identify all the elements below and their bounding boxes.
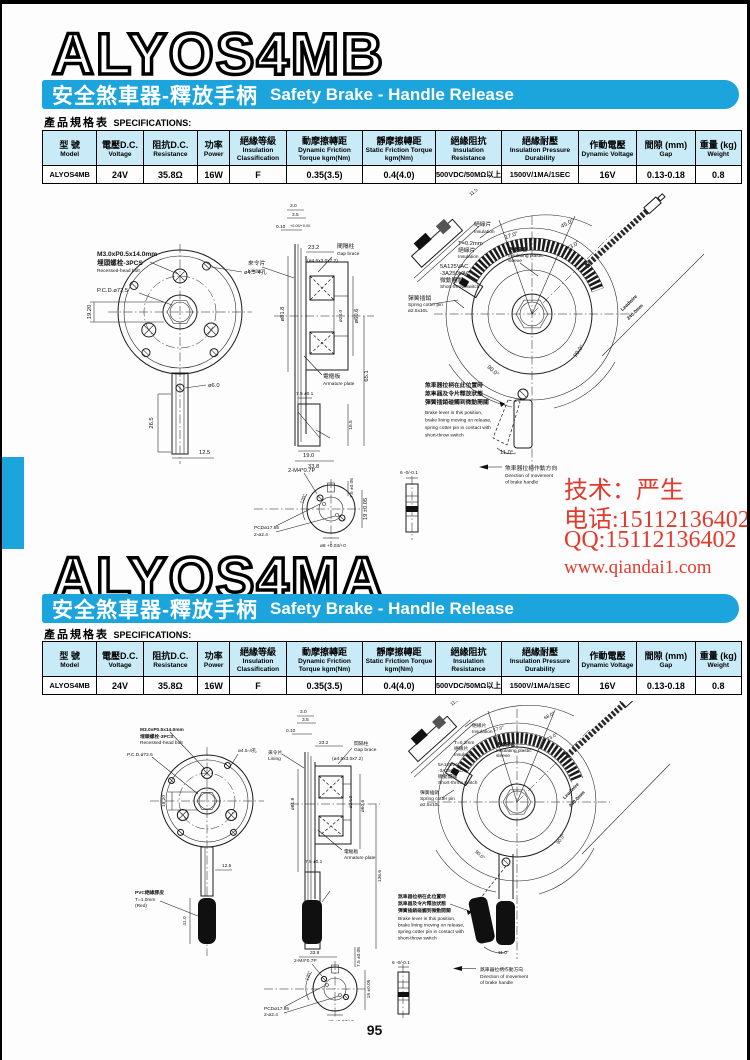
dim-16-5: 16.5 bbox=[348, 420, 354, 430]
angle-17: 17.0° bbox=[492, 725, 505, 734]
angle-11: 11.0° bbox=[500, 450, 513, 456]
col-gap: 間隙 (mm)Gap bbox=[637, 131, 695, 166]
lining-zh: 來令片 bbox=[248, 259, 266, 267]
angle-90-right: 90.0° bbox=[573, 344, 586, 359]
armature-en: Armature plate bbox=[344, 855, 376, 861]
armature-zh: 電樞板 bbox=[344, 848, 359, 855]
col-resistance: 阻抗D.C.Resistance bbox=[143, 131, 197, 166]
col-insulation-resistance: 絕緣阻抗Insulation Resistance bbox=[435, 131, 501, 166]
cell-resistance: 35.8Ω bbox=[143, 166, 197, 184]
col-model: 型 號Model bbox=[43, 131, 97, 166]
dia-8-label: ø8 +0.03/+0 bbox=[328, 1019, 354, 1021]
leadwire-connector bbox=[644, 192, 666, 213]
pcd-label: P.C.D.ø72.5 bbox=[127, 752, 153, 758]
cell-power: 16W bbox=[198, 677, 230, 695]
back-view-2: 11.5 17.0° 68.0° 73.0° 90.0° 90.0° 11.0°… bbox=[394, 701, 670, 986]
dim-19b: 19 ±0.05 bbox=[366, 979, 372, 998]
col-static-friction: 靜摩擦轉距Static Friction Torque kgm(Nm) bbox=[363, 131, 436, 166]
gap-size: (ø4.5x3.0x7.2) bbox=[307, 258, 338, 264]
dim-19-20: 19.20 bbox=[87, 305, 93, 320]
hub-bolt-label: 2-M4*0.7P bbox=[294, 958, 317, 964]
dia-60-6: ø60.6 bbox=[354, 309, 360, 324]
dim-11-5: 11.5 bbox=[449, 701, 460, 708]
side-section-view-1: 3.0 3.5 0.10 +0.05/+0.00 23.2 間隔柱 Gap br… bbox=[248, 203, 374, 470]
svg-text:of brake handle: of brake handle bbox=[505, 480, 538, 486]
dim-3-0: 3.0 bbox=[300, 709, 307, 715]
angle-11: 11.0° bbox=[498, 950, 509, 956]
hub-pcd-label: PCDø17.85 bbox=[254, 525, 279, 531]
cell-gap: 0.13-0.18 bbox=[637, 677, 695, 695]
cell-weight: 0.8 bbox=[695, 677, 741, 695]
cell-model: ALYOS4MB bbox=[43, 677, 97, 695]
cell-insulation-resistance: 500VDC/50MΩ以上 bbox=[435, 677, 501, 695]
pvc-label-1: PVC絕緣膠皮 bbox=[135, 889, 164, 896]
bolt-spec-label: M3.0xP0.5x14.0mm bbox=[97, 251, 157, 258]
section2-banner: 安全煞車器-釋放手柄 Safety Brake - Handle Release bbox=[42, 594, 739, 623]
back-view-1: 11.5 17.0° 45.0° 73.0° 90.0° 90.0° 11.0°… bbox=[397, 189, 704, 486]
col-insulation-class: 絕緣等級Insulation Classification bbox=[230, 642, 286, 677]
col-weight: 重量 (kg)Weight bbox=[695, 642, 741, 677]
cell-gap: 0.13-0.18 bbox=[637, 166, 695, 184]
dim-65-1: 65.1 bbox=[364, 370, 370, 381]
svg-text:Direction of movement: Direction of movement bbox=[505, 473, 554, 479]
pin-zh: 彈簧插銷 bbox=[408, 294, 431, 302]
spec-table-1: 型 號Model 電壓D.C.Voltage 阻抗D.C.Resistance … bbox=[42, 130, 742, 184]
dim-6-label: 6 -0/-0.1 bbox=[400, 470, 418, 476]
col-insulation-pressure: 絕緣耐壓Insulation Pressure Durability bbox=[502, 642, 579, 677]
watermark-url: www.qiandai1.com bbox=[564, 557, 712, 579]
gap-zh: 間隔柱 bbox=[354, 740, 369, 747]
drawing-section-2: M3.0xP0.5x14.0mm 埋頭螺栓-3PCS Recessed-head… bbox=[2, 701, 750, 1021]
hub-detail-2: 2-M4*0.7P 120° PCDø17.85 2-ø2.4 19 ±0.05… bbox=[264, 958, 410, 1021]
front-view-1: M3.0xP0.5x14.0mm 埋頭螺栓-3PCS Recessed-head… bbox=[87, 244, 267, 464]
hub-holes-label: 2-ø2.4 bbox=[264, 1012, 278, 1018]
col-power: 功率Power bbox=[198, 131, 230, 166]
switch-zh: 微動開關 bbox=[440, 276, 463, 284]
svg-text:short-throw switch: short-throw switch bbox=[398, 936, 437, 942]
page-number: 95 bbox=[2, 1022, 747, 1038]
col-insulation-pressure: 絕緣耐壓Insulation Pressure Durability bbox=[502, 131, 579, 166]
dim-33-8: 33.8 bbox=[310, 950, 320, 956]
insul-en-2: Insulation bbox=[458, 254, 479, 260]
cell-voltage: 24V bbox=[97, 677, 143, 695]
armature-zh: 電樞板 bbox=[323, 372, 341, 380]
switch-v2: -3A250VAC bbox=[440, 271, 470, 277]
cell-insulation-class: F bbox=[230, 677, 286, 695]
sleeve-en2: sleeve bbox=[496, 753, 510, 759]
svg-text:彈簧插銷碰觸到微動開關: 彈簧插銷碰觸到微動開關 bbox=[398, 907, 451, 914]
bolt-zh-label: 埋頭螺栓-3PCS bbox=[97, 258, 143, 267]
cell-dynamic-voltage: 16V bbox=[578, 677, 636, 695]
dim-3-0: 3.0 bbox=[290, 203, 297, 209]
cell-insulation-pressure: 1500V/1MA/1SEC bbox=[502, 677, 579, 695]
hub-holes-label: 2-ø2.4 bbox=[254, 532, 268, 538]
switch-en: Short-throw switch bbox=[438, 780, 478, 786]
pin-size: ø2.5x10L bbox=[408, 308, 428, 314]
pin-en: Spring cotter pin bbox=[420, 796, 455, 802]
section1-banner: 安全煞車器-釋放手柄 Safety Brake - Handle Release bbox=[42, 80, 739, 109]
section1-title: ALYOS4MB bbox=[52, 26, 385, 84]
bolt-zh-label: 埋頭螺栓-3PCS bbox=[140, 733, 174, 740]
cell-dynamic-friction: 0.35(3.5) bbox=[286, 166, 363, 184]
dia-81-8: ø81.8 bbox=[290, 798, 296, 811]
dia-81-8: ø81.8 bbox=[280, 307, 286, 322]
col-static-friction: 靜摩擦轉距Static Friction Torque kgm(Nm) bbox=[363, 642, 436, 677]
dia-60-6: ø60.6 bbox=[360, 800, 366, 813]
cell-power: 16W bbox=[198, 166, 230, 184]
sleeve-zh: 絕緣膠套 bbox=[496, 741, 515, 748]
cell-resistance: 35.8Ω bbox=[143, 677, 197, 695]
angle-90-left: 90.0° bbox=[473, 849, 485, 861]
blue-side-tab bbox=[2, 457, 24, 549]
direction-note-1: 煞車器拉柄作動方向 Direction of movement of brake… bbox=[479, 464, 557, 486]
insul-zh-2: 絕緣片 bbox=[458, 246, 476, 254]
sleeve-zh: 絕緣膠套 bbox=[508, 246, 527, 253]
bolt-en-label: Recessed-head bolt bbox=[97, 268, 140, 274]
col-dynamic-friction: 動摩擦轉距Dynamic Friction Torque kgm(Nm) bbox=[286, 642, 363, 677]
front-view-2: M3.0xP0.5x14.0mm 埋頭螺栓-3PCS Recessed-head… bbox=[127, 727, 264, 956]
gap-en: Gap brace bbox=[337, 251, 360, 257]
bolt-en-label: Recessed-head bolt bbox=[140, 740, 183, 746]
angle-120: 120° bbox=[304, 970, 313, 981]
insul-en-1: Insulation bbox=[474, 229, 495, 235]
dim-7-5b: 7.5 ±0.05 bbox=[349, 478, 355, 498]
angle-120: 120° bbox=[299, 493, 308, 504]
svg-text:Direction of movement: Direction of movement bbox=[480, 974, 529, 980]
cell-insulation-pressure: 1500V/1MA/1SEC bbox=[502, 166, 579, 184]
cell-dynamic-friction: 0.35(3.5) bbox=[286, 677, 363, 695]
dim-26-5: 26.5 bbox=[149, 417, 155, 428]
col-voltage: 電壓D.C.Voltage bbox=[97, 131, 143, 166]
cell-model: ALYOS4MB bbox=[43, 166, 97, 184]
dim-12-5: 12.5 bbox=[199, 450, 210, 456]
svg-text:煞車器拉柄作動方向: 煞車器拉柄作動方向 bbox=[480, 966, 523, 973]
svg-text:brake lining moving on release: brake lining moving on release, bbox=[398, 923, 464, 929]
tol-0-10: +0.05/+0.00 bbox=[290, 224, 310, 228]
switch-zh: 微動開關 bbox=[438, 773, 457, 780]
col-gap: 間隙 (mm)Gap bbox=[637, 642, 695, 677]
released-grip bbox=[468, 896, 496, 945]
pvc-label-3: (Red) bbox=[135, 903, 147, 909]
gap-zh: 間隔柱 bbox=[337, 242, 355, 250]
insul-t02: T=0.2mm bbox=[454, 740, 474, 746]
cell-weight: 0.8 bbox=[695, 166, 741, 184]
insul-en-1: Insulation bbox=[472, 729, 493, 735]
dim-3-5: 3.5 bbox=[302, 717, 309, 723]
col-voltage: 電壓D.C.Voltage bbox=[97, 642, 143, 677]
switch-v1: 5A125VAC bbox=[438, 762, 462, 768]
dim-11-5: 11.5 bbox=[468, 189, 479, 198]
col-insulation-resistance: 絕緣阻抗Insulation Resistance bbox=[435, 642, 501, 677]
position-note-1: 煞車器拉柄在此位置時 煞車器及令片釋放狀態 彈簧插銷碰觸到微動開關 Brake … bbox=[425, 381, 505, 439]
banner-en: Safety Brake - Handle Release bbox=[270, 85, 514, 105]
side-section-view-2: 3.0 3.5 0.10 23.2 間隔柱 Gap brace (ø4.5x3.… bbox=[268, 709, 383, 967]
dim-3-5: 3.5 bbox=[292, 212, 299, 218]
col-resistance: 阻抗D.C.Resistance bbox=[143, 642, 197, 677]
col-dynamic-friction: 動摩擦轉距Dynamic Friction Torque kgm(Nm) bbox=[286, 131, 363, 166]
dim-136-6: 136.6 bbox=[377, 870, 383, 882]
svg-text:煞車器及令片釋放狀態: 煞車器及令片釋放狀態 bbox=[398, 900, 446, 907]
switch-v1: 5A125VAC bbox=[440, 264, 468, 270]
col-model: 型 號Model bbox=[43, 642, 97, 677]
mount-holes bbox=[130, 262, 218, 357]
insul-en-2: Insulation bbox=[454, 752, 475, 758]
gap-en: Gap brace bbox=[354, 747, 377, 753]
switch-v2: -3A250VAC bbox=[438, 768, 464, 774]
switch-en: Short-throw switch bbox=[440, 284, 480, 290]
dim-23-2: 23.2 bbox=[308, 245, 319, 251]
pin-zh: 彈簧插銷 bbox=[420, 789, 439, 796]
dia-24-0: ø24.0 bbox=[348, 796, 354, 809]
cell-voltage: 24V bbox=[97, 166, 143, 184]
cell-static-friction: 0.4(4.0) bbox=[363, 166, 436, 184]
col-dynamic-voltage: 作動電壓Dynamic Voltage bbox=[578, 642, 636, 677]
cell-dynamic-voltage: 16V bbox=[578, 166, 636, 184]
armature-en: Armature plate bbox=[323, 381, 355, 387]
svg-text:Brake lever in this position,: Brake lever in this position, bbox=[398, 916, 455, 922]
angle-73: 73.0° bbox=[546, 732, 559, 743]
dim-19-20: 19.20 bbox=[161, 795, 167, 807]
hub-bolt-label: 2-M4*0.7P bbox=[288, 468, 316, 474]
lining-zh: 來令片 bbox=[268, 749, 283, 756]
insul-zh-2: 絕緣片 bbox=[454, 745, 469, 752]
direction-note-2: 煞車器拉柄作動方向 Direction of movement of brake… bbox=[453, 966, 529, 986]
bolt-spec-label: M3.0xP0.5x14.0mm bbox=[140, 727, 184, 733]
insul-zh-1: 絕緣片 bbox=[472, 722, 487, 729]
gap-size: (ø4.5x3.0x7.2) bbox=[332, 756, 363, 762]
lining-en: Lining bbox=[248, 268, 261, 274]
insul-t02: T=0.2mm bbox=[458, 241, 483, 247]
cell-static-friction: 0.4(4.0) bbox=[363, 677, 436, 695]
angle-45: 45.0° bbox=[560, 218, 575, 230]
dim-0-10: 0.10 bbox=[286, 728, 296, 734]
switch-detail-assembly bbox=[394, 701, 474, 777]
position-note-2: 煞車器拉柄在此位置時 煞車器及令片釋放狀態 彈簧插銷碰觸到微動開關 Brake … bbox=[398, 893, 472, 942]
dim-19-0: 19.0 bbox=[303, 453, 314, 459]
dim-7-5: 7.5 ±0.1 bbox=[305, 859, 323, 865]
svg-text:brake lining moving on release: brake lining moving on release, bbox=[425, 418, 491, 424]
insul-zh-1: 絕緣片 bbox=[474, 220, 492, 228]
svg-text:spring cotter pin in contact w: spring cotter pin in contact with bbox=[425, 425, 491, 431]
pvc-label-2: T=1.0mm bbox=[135, 897, 155, 903]
col-power: 功率Power bbox=[198, 642, 230, 677]
svg-text:煞車器拉柄在此位置時: 煞車器拉柄在此位置時 bbox=[425, 381, 483, 389]
dim-41: 41.0 bbox=[182, 916, 188, 926]
watermark-line-3: QQ:15112136402 bbox=[564, 527, 736, 554]
holes-label: ø4.5-4孔 bbox=[238, 747, 257, 754]
svg-text:of brake handle: of brake handle bbox=[480, 980, 513, 986]
lining-en: Lining bbox=[268, 756, 281, 762]
col-dynamic-voltage: 作動電壓Dynamic Voltage bbox=[578, 131, 636, 166]
section1-specs-label: 產品規格表 SPECIFICATIONS: bbox=[44, 113, 191, 131]
hub-detail-1: 2-M4*0.7P 120° PCDø17.85 2-ø2.4 7.5 ±0.0… bbox=[254, 468, 418, 549]
dim-7-5b: 7.5 ±0.05 bbox=[356, 947, 362, 967]
svg-text:煞車器及令片釋放狀態: 煞車器及令片釋放狀態 bbox=[425, 390, 483, 398]
svg-text:彈簧插銷碰觸到微動開關: 彈簧插銷碰觸到微動開關 bbox=[425, 398, 489, 406]
dim-19b: 19 ±0.05 bbox=[363, 498, 369, 521]
dim-23-2: 23.2 bbox=[319, 740, 329, 746]
svg-text:煞車器拉柄在此位置時: 煞車器拉柄在此位置時 bbox=[398, 893, 446, 900]
svg-text:Brake lever in this position,: Brake lever in this position, bbox=[425, 410, 482, 416]
dia-24-0: ø24.0 bbox=[338, 310, 344, 323]
svg-text:煞車器拉柄作動方向: 煞車器拉柄作動方向 bbox=[505, 464, 557, 472]
dim-6-label: 6 -0/-0.1 bbox=[392, 960, 410, 966]
svg-text:spring cotter pin in contact w: spring cotter pin in contact with bbox=[398, 929, 464, 935]
banner-zh: 安全煞車器-釋放手柄 bbox=[52, 80, 258, 110]
dim-dia6: ø6.0 bbox=[208, 383, 220, 389]
cell-insulation-resistance: 500VDC/50MΩ以上 bbox=[435, 166, 501, 184]
dim-0-10: 0.10 bbox=[276, 224, 286, 230]
svg-text:short-throw switch: short-throw switch bbox=[425, 433, 464, 439]
spec-table-2: 型 號Model 電壓D.C.Voltage 阻抗D.C.Resistance … bbox=[42, 641, 742, 695]
dim-12-5: 12.5 bbox=[222, 863, 232, 869]
col-insulation-class: 絕緣等級Insulation Classification bbox=[230, 131, 286, 166]
pin-size: ø2.5x10L bbox=[420, 802, 440, 808]
dim-7-5: 7.5 ±0.1 bbox=[296, 391, 314, 397]
hub-pcd-label: PCDø17.85 bbox=[264, 1006, 289, 1012]
datasheet-page: ALYOS4MB 安全煞車器-釋放手柄 Safety Brake - Handl… bbox=[0, 0, 750, 1060]
angle-90-left: 90.0° bbox=[486, 364, 500, 378]
cell-insulation-class: F bbox=[230, 166, 286, 184]
col-weight: 重量 (kg)Weight bbox=[695, 131, 741, 166]
pcd-label: P.C.D.ø72.5 bbox=[97, 288, 128, 294]
